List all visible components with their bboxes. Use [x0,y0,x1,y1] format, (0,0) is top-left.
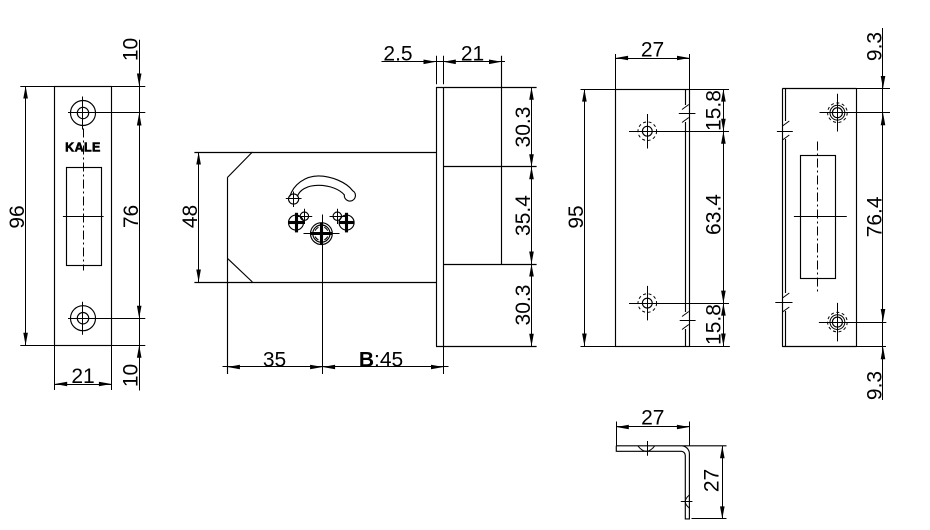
svg-text:9.3: 9.3 [864,32,887,61]
svg-text:15.8: 15.8 [703,90,726,131]
svg-text:B:45: B:45 [359,348,403,371]
svg-text:95: 95 [565,205,588,228]
svg-text:27: 27 [641,407,664,430]
svg-text:27: 27 [701,469,724,492]
svg-text:76.4: 76.4 [864,196,887,237]
svg-text:76: 76 [120,205,143,228]
svg-text:10: 10 [120,38,143,61]
svg-text:30.3: 30.3 [512,107,535,148]
svg-text:96: 96 [6,205,29,228]
svg-text:9.3: 9.3 [864,371,887,400]
svg-text:63.4: 63.4 [703,194,726,235]
svg-text:35.4: 35.4 [512,195,535,236]
svg-text:KALE: KALE [65,141,101,155]
svg-text:10: 10 [120,364,143,387]
svg-text:27: 27 [641,39,664,62]
svg-text:48: 48 [179,205,202,228]
svg-text:2.5: 2.5 [383,43,412,66]
svg-text:35: 35 [263,348,286,371]
svg-text:30.3: 30.3 [512,285,535,326]
svg-text:15.8: 15.8 [703,304,726,345]
svg-text:21: 21 [71,365,94,388]
svg-text:21: 21 [461,43,484,66]
